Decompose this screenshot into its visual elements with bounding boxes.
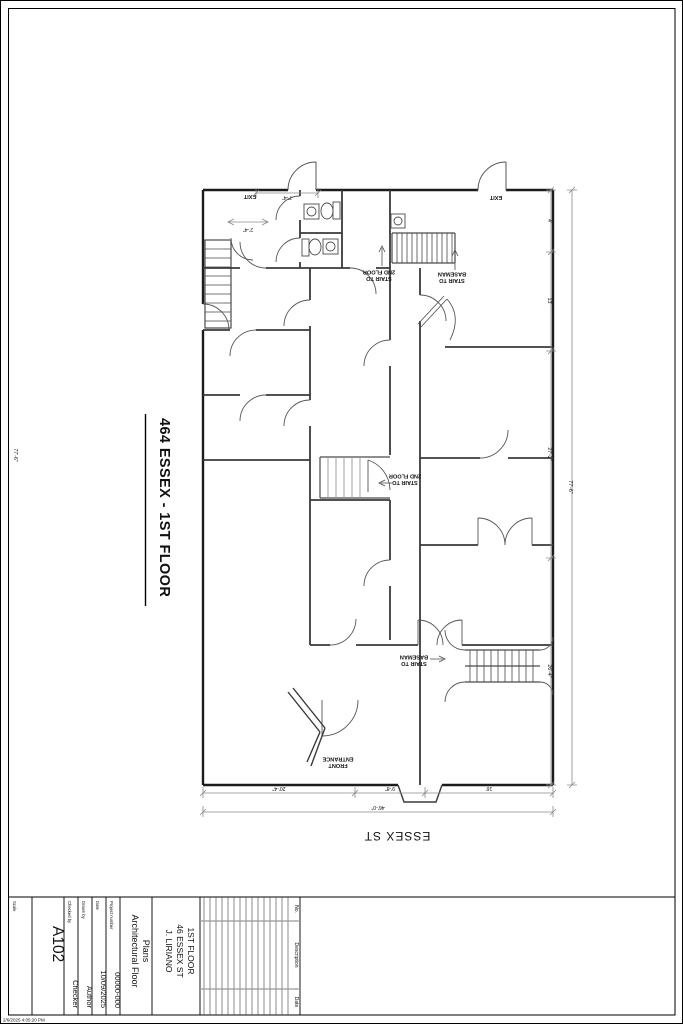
label-line: STAIR TO — [366, 275, 392, 281]
revision-description-header: Description — [293, 942, 299, 967]
stair-treads — [397, 233, 452, 263]
stair-outline — [205, 240, 231, 328]
stair-treads — [205, 249, 231, 321]
bottom-dim-chain — [200, 787, 556, 798]
label-line: BASEMAN — [438, 271, 466, 277]
sheet-border — [1, 1, 683, 1024]
project-address: 46 ESSEX ST — [175, 924, 185, 977]
dim-text: 16' — [486, 785, 493, 791]
stair-basement-top-label: STAIR TO BASEMAN — [438, 271, 466, 284]
stair-rails — [392, 233, 455, 263]
stair-rails — [465, 650, 540, 682]
toilet — [321, 202, 340, 219]
stair-door-arc — [368, 460, 390, 492]
sink — [323, 239, 338, 254]
floor-plan: EXIT EXIT STAIR TO 2ND FLOOR STAIR TO BA… — [12, 162, 577, 843]
dim-text: 46'-0" — [371, 804, 384, 810]
floor-plan-sheet-svg: EXIT EXIT STAIR TO 2ND FLOOR STAIR TO BA… — [0, 0, 683, 1024]
project-number-label: Project number — [109, 901, 114, 930]
corridor-dim — [228, 219, 268, 225]
dim-text: 20'-4" — [272, 785, 285, 791]
dim-text: 9'-8" — [385, 785, 395, 791]
bathroom-walls — [300, 190, 390, 268]
double-door-mid-right — [478, 518, 532, 545]
stair-middle — [320, 457, 392, 498]
left-wall-door-arc — [203, 304, 229, 330]
dim-text: 7'-4" — [282, 194, 292, 200]
project-number-value: 00000-000 — [113, 972, 122, 1008]
label-arrow — [379, 480, 392, 486]
revision-grid — [204, 897, 288, 1015]
label-line: STAIR TO — [392, 479, 418, 485]
essex-st-label: ESSEX ST — [364, 829, 431, 843]
label-line: 2ND FLOOR — [363, 269, 395, 275]
revision-date-header: Date — [293, 997, 299, 1008]
drawn-by-value: Author — [85, 986, 94, 1009]
dim-text: 13' — [546, 298, 552, 305]
exit-label-right: EXIT — [489, 194, 502, 200]
revision-grid-dividers — [200, 921, 300, 989]
project-client: J. LIRIANO — [164, 930, 174, 973]
label-arrow — [430, 656, 445, 662]
bathrooms — [276, 190, 405, 268]
right-dim-chain — [546, 187, 556, 788]
revision-no-header: No. — [293, 905, 299, 913]
scale-label: Scale — [12, 901, 17, 912]
sheet-name-line: Plans — [141, 940, 151, 963]
sink — [391, 214, 405, 228]
sink — [304, 204, 319, 219]
label-line: BASEMAN — [400, 654, 428, 660]
toilet — [302, 239, 321, 256]
exit-label: EXIT — [243, 193, 256, 199]
stair-top-left — [205, 238, 253, 328]
drawn-by-label: Drawn by — [81, 901, 86, 920]
date-label: Date — [95, 901, 100, 911]
label-line: FRONT — [328, 762, 348, 768]
double-door-basement-room — [418, 620, 462, 645]
date-value: 10/09/2025 — [99, 970, 108, 1008]
checked-by-label: Checked by — [67, 901, 72, 924]
stair-2nd-top-label: STAIR TO 2ND FLOOR — [363, 269, 395, 282]
exit-label-left: EXIT — [243, 193, 256, 199]
inner-page-border — [9, 9, 676, 1016]
outer-page-border — [1, 1, 683, 1024]
stair-door-arc — [231, 238, 253, 260]
sheet-number: A102 — [49, 926, 66, 962]
stair-rails — [320, 457, 390, 498]
exit-label: EXIT — [489, 194, 502, 200]
dim-text: 26'-4" — [546, 664, 552, 677]
interior-walls — [203, 268, 553, 785]
print-timestamp: 2/6/2025 4:05:20 PM — [3, 1018, 45, 1023]
label-line: 2ND FLOOR — [389, 473, 421, 479]
front-entrance-label: FRONT ENTRANCE — [322, 756, 353, 769]
drawing-sheet: EXIT EXIT STAIR TO 2ND FLOOR STAIR TO BA… — [0, 0, 683, 1024]
exit-door-arcs — [288, 162, 506, 190]
label-line: STAIR TO — [439, 277, 465, 283]
stair-treads — [328, 457, 360, 498]
view-title-text: 464 ESSEX - 1ST FLOOR — [156, 418, 172, 597]
dim-text: 77'-6" — [12, 448, 18, 461]
stair-basement-bottom-label: STAIR TO BASEMAN — [400, 654, 428, 667]
dim-text: 77'-6" — [567, 480, 573, 493]
dim-text: 27'-2" — [546, 447, 552, 460]
dim-text: 2'-4" — [243, 226, 253, 232]
project-floor: 1ST FLOOR — [186, 927, 196, 974]
stair-2nd-mid-label: STAIR TO 2ND FLOOR — [389, 473, 421, 486]
label-line: ENTRANCE — [322, 756, 353, 762]
label-line: STAIR TO — [401, 660, 427, 666]
dim-text: 4' — [546, 219, 552, 223]
interior-door-arcs — [230, 242, 508, 736]
view-title: 464 ESSEX - 1ST FLOOR — [146, 414, 173, 606]
bathroom-door-arcs — [276, 196, 300, 262]
sheet-name-line: Architectural Floor — [130, 914, 140, 987]
street-label: ESSEX ST — [364, 829, 431, 843]
angled-door — [418, 296, 455, 340]
title-block: Scale Checked by Drawn by Date Project n… — [8, 897, 675, 1015]
checked-by-value: Checker — [71, 980, 80, 1008]
stair-bottom-right — [430, 630, 553, 702]
